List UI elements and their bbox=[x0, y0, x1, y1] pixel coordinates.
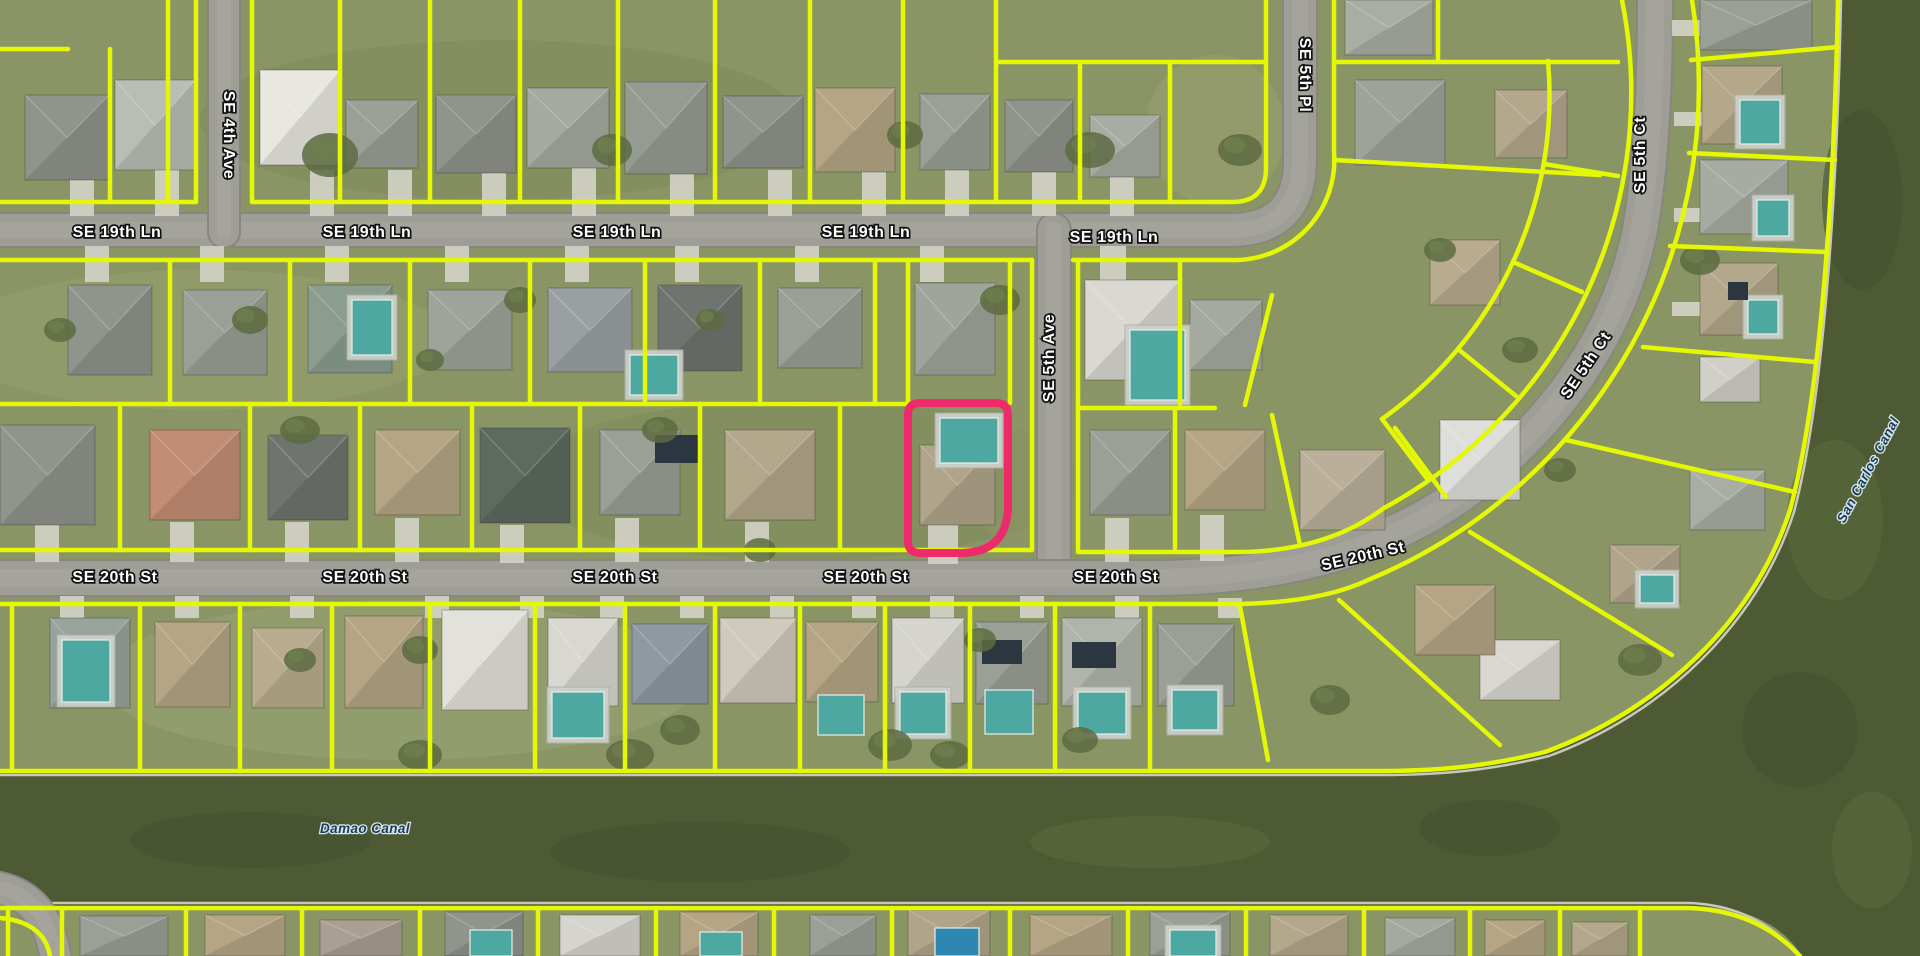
street-label: SE 20th St bbox=[72, 569, 157, 586]
driveway bbox=[770, 596, 794, 618]
tree-highlight bbox=[237, 309, 255, 323]
street-label: SE 5th Pl bbox=[1296, 38, 1313, 113]
driveway bbox=[200, 246, 224, 282]
driveway bbox=[615, 518, 639, 562]
pool bbox=[1172, 690, 1218, 730]
pool bbox=[1757, 200, 1789, 236]
solar-panel bbox=[1072, 642, 1116, 668]
water-texture bbox=[550, 822, 850, 882]
driveway bbox=[35, 520, 59, 562]
street-label: SE 19th Ln bbox=[573, 224, 662, 241]
tree-highlight bbox=[407, 639, 425, 653]
water-texture bbox=[1742, 672, 1858, 788]
street-label: SE 5th Ave bbox=[1041, 314, 1058, 402]
tree-highlight bbox=[1315, 688, 1335, 703]
pool bbox=[470, 930, 512, 956]
driveway bbox=[170, 522, 194, 562]
aerial-parcel-map[interactable]: SE 19th LnSE 19th LnSE 19th LnSE 19th Ln… bbox=[0, 0, 1920, 956]
tree-highlight bbox=[1548, 460, 1564, 472]
solar-panel bbox=[1728, 282, 1748, 300]
tree-highlight bbox=[985, 288, 1005, 303]
pool bbox=[818, 695, 864, 735]
driveway bbox=[325, 246, 349, 282]
pool bbox=[1740, 100, 1780, 144]
driveway bbox=[795, 246, 819, 282]
driveway bbox=[60, 596, 84, 618]
pool bbox=[1640, 575, 1674, 603]
pool bbox=[62, 640, 110, 702]
pool bbox=[900, 692, 946, 734]
pool bbox=[935, 928, 979, 956]
pool bbox=[630, 355, 678, 395]
driveway bbox=[920, 246, 944, 282]
tree-highlight bbox=[1067, 730, 1085, 743]
tree-highlight bbox=[1685, 248, 1705, 263]
pool bbox=[985, 690, 1033, 734]
driveway bbox=[852, 596, 876, 618]
pool bbox=[1130, 330, 1185, 400]
tree-highlight bbox=[285, 419, 305, 433]
driveway bbox=[1110, 172, 1134, 216]
driveway bbox=[1020, 596, 1044, 618]
driveway bbox=[1115, 596, 1139, 618]
driveway bbox=[395, 518, 419, 562]
driveway bbox=[675, 246, 699, 282]
driveway bbox=[945, 170, 969, 216]
pool bbox=[1748, 300, 1778, 334]
driveway bbox=[500, 525, 524, 563]
tree-highlight bbox=[309, 137, 337, 159]
driveway bbox=[290, 596, 314, 618]
street-label: SE 4th Ave bbox=[220, 91, 237, 179]
pool bbox=[940, 418, 998, 463]
driveway bbox=[768, 170, 792, 216]
driveway bbox=[482, 170, 506, 216]
driveway bbox=[670, 170, 694, 216]
driveway bbox=[600, 596, 624, 618]
driveway bbox=[445, 246, 469, 282]
tree-highlight bbox=[288, 650, 304, 662]
water-texture bbox=[1030, 816, 1270, 868]
driveway bbox=[1100, 246, 1126, 282]
water-texture bbox=[1832, 792, 1912, 908]
street-label: SE 19th Ln bbox=[73, 224, 162, 241]
driveway bbox=[175, 596, 199, 618]
street-label: SE 20th St bbox=[572, 569, 657, 586]
tree-highlight bbox=[665, 718, 685, 733]
street-label: SE 19th Ln bbox=[323, 224, 412, 241]
tree-highlight bbox=[1071, 136, 1096, 154]
tree-highlight bbox=[508, 290, 524, 303]
driveway bbox=[1105, 518, 1129, 562]
driveway bbox=[85, 246, 109, 282]
tree-highlight bbox=[420, 351, 434, 362]
driveway bbox=[565, 246, 589, 282]
driveway bbox=[680, 596, 704, 618]
driveway bbox=[285, 522, 309, 562]
pool bbox=[552, 692, 604, 738]
street-label: SE 20th St bbox=[322, 569, 407, 586]
street-label: SE 19th Ln bbox=[822, 224, 911, 241]
tree-highlight bbox=[1224, 137, 1246, 153]
pool bbox=[700, 932, 742, 956]
tree-highlight bbox=[1624, 647, 1646, 663]
street-label: SE 19th Ln bbox=[1070, 229, 1159, 246]
driveway bbox=[1672, 302, 1702, 316]
tree-highlight bbox=[1507, 340, 1525, 353]
street-label: SE 5th Ct bbox=[1632, 117, 1649, 194]
pool bbox=[1170, 930, 1216, 956]
driveway bbox=[572, 168, 596, 216]
driveway bbox=[388, 170, 412, 216]
map-canvas[interactable]: SE 19th LnSE 19th LnSE 19th LnSE 19th Ln… bbox=[0, 0, 1920, 956]
tree-highlight bbox=[892, 124, 910, 138]
water-texture bbox=[1420, 800, 1560, 856]
canal-label: Damao Canal bbox=[320, 821, 410, 836]
driveway bbox=[862, 168, 886, 216]
tree-highlight bbox=[48, 320, 64, 332]
tree-highlight bbox=[647, 420, 665, 433]
tree-highlight bbox=[700, 311, 714, 322]
street-label: SE 20th St bbox=[1073, 569, 1158, 586]
tree-highlight bbox=[597, 137, 617, 153]
street-label: SE 20th St bbox=[823, 569, 908, 586]
tree-highlight bbox=[935, 744, 955, 758]
tree-highlight bbox=[404, 743, 426, 758]
driveway bbox=[930, 596, 954, 618]
driveway bbox=[1032, 172, 1056, 216]
tree-highlight bbox=[1428, 240, 1444, 252]
pool bbox=[352, 300, 392, 355]
